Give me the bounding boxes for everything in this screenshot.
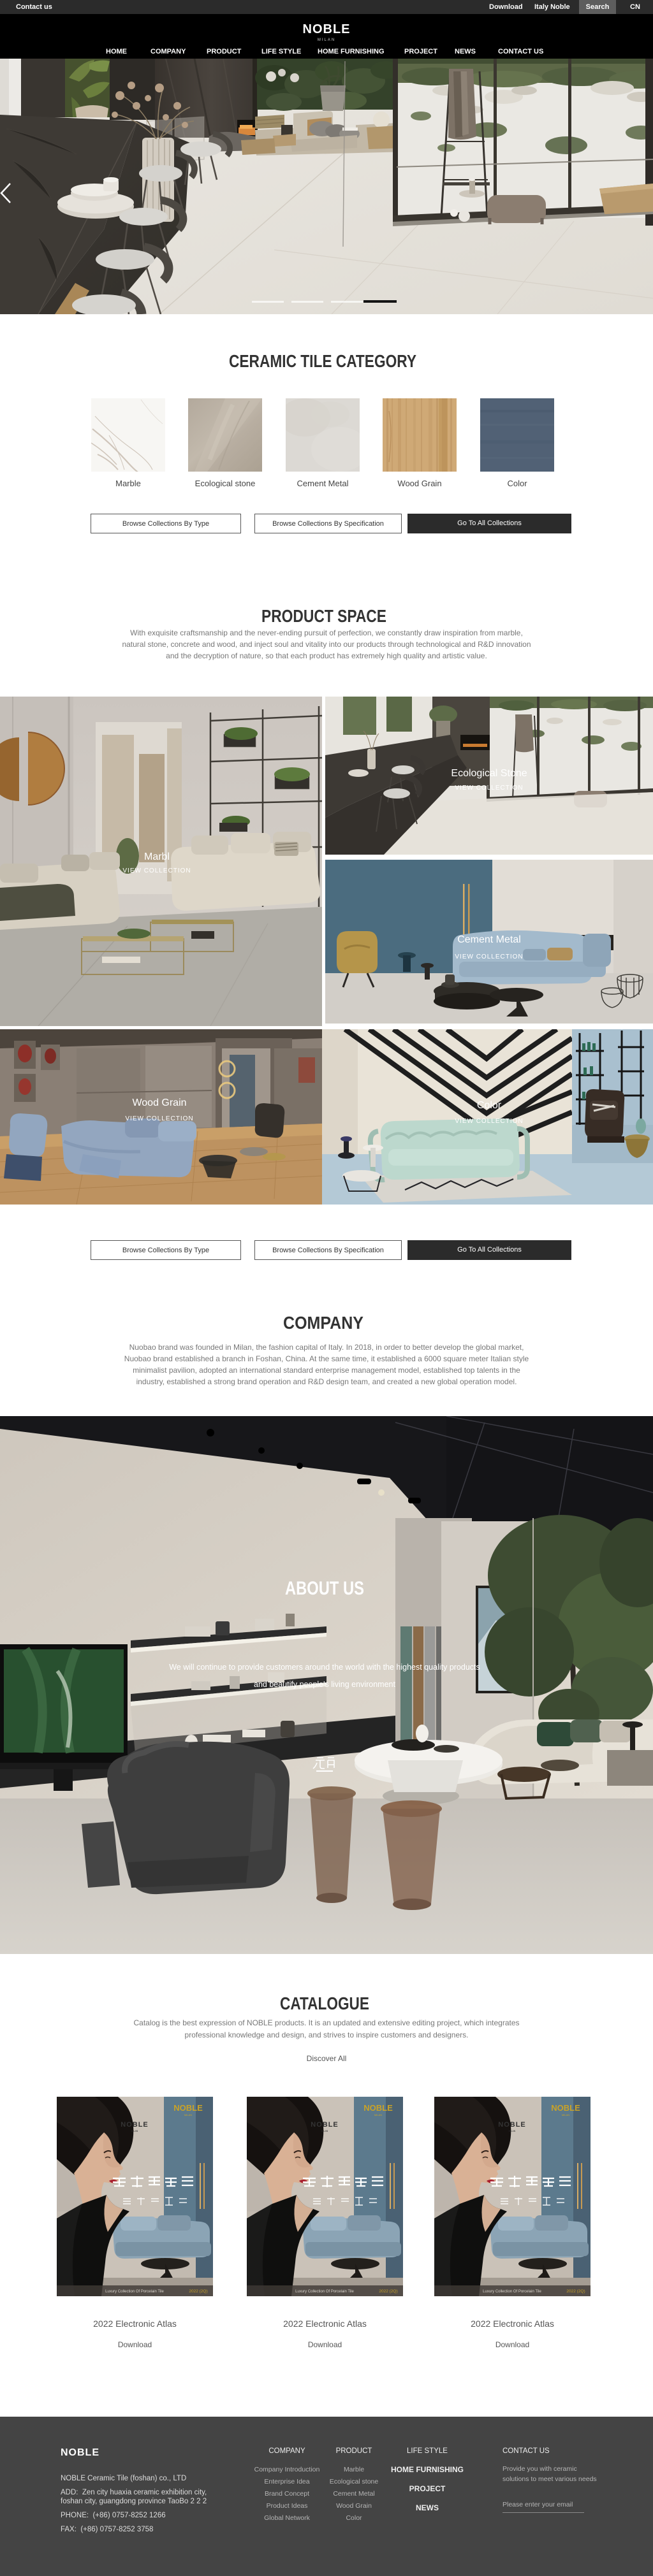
svg-text:CERAMIC TILE CATEGORY: CERAMIC TILE CATEGORY [229,351,416,371]
svg-text:Marbl: Marbl [144,851,170,862]
svg-text:VIEW COLLECTION: VIEW COLLECTION [455,1118,523,1125]
svg-text:PRODUCT SPACE: PRODUCT SPACE [261,606,386,626]
svg-text:COMPANY: COMPANY [283,1313,363,1333]
svg-text:Wood Grain: Wood Grain [132,1097,186,1108]
svg-text:Cement Metal: Cement Metal [457,934,521,945]
svg-text:and beautify people's living e: and beautify people's living environment [254,1680,395,1689]
svg-text:VIEW COLLECTION: VIEW COLLECTION [455,953,523,960]
svg-text:Color: Color [477,1100,502,1111]
svg-text:CATALOGUE: CATALOGUE [280,1994,369,2013]
svg-text:Ecological Stone: Ecological Stone [451,768,527,779]
svg-text:We will continue to provide cu: We will continue to provide customers ar… [169,1663,480,1672]
svg-text:ABOUT US: ABOUT US [285,1578,364,1599]
svg-text:VIEW COLLECTION: VIEW COLLECTION [455,785,523,792]
svg-text:VIEW COLLECTION: VIEW COLLECTION [125,1115,193,1122]
svg-text:VIEW COLLECTION: VIEW COLLECTION [122,867,191,874]
